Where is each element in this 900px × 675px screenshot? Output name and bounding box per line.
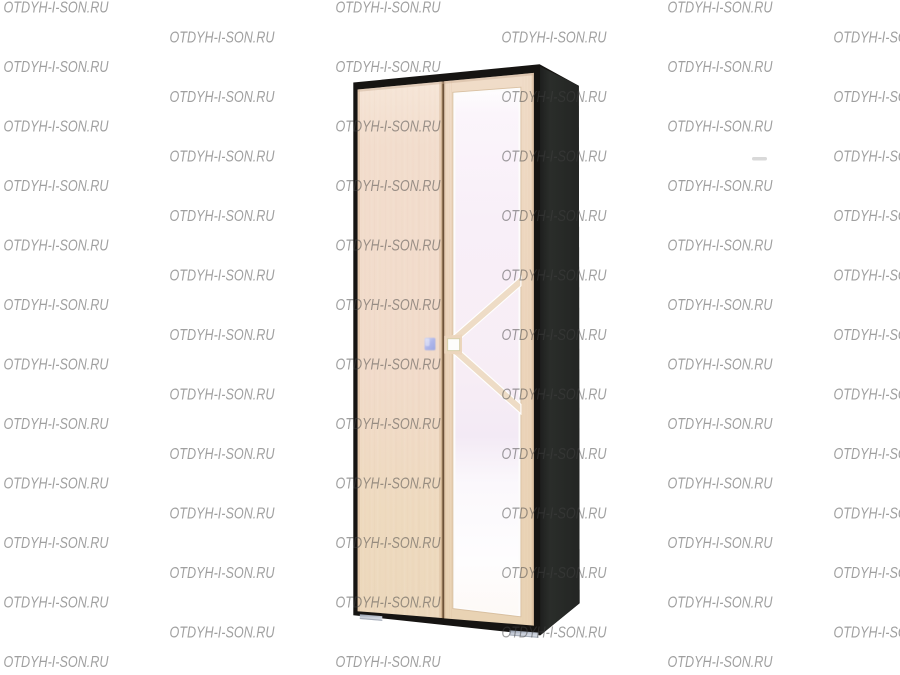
svg-text:OTDYH-I-SON.RU: OTDYH-I-SON.RU bbox=[170, 89, 275, 106]
svg-text:OTDYH-I-SON.RU: OTDYH-I-SON.RU bbox=[336, 238, 441, 255]
svg-text:OTDYH-I-SON.RU: OTDYH-I-SON.RU bbox=[170, 327, 275, 344]
svg-text:OTDYH-I-SON.RU: OTDYH-I-SON.RU bbox=[834, 29, 900, 46]
svg-text:OTDYH-I-SON.RU: OTDYH-I-SON.RU bbox=[336, 416, 441, 433]
svg-text:OTDYH-I-SON.RU: OTDYH-I-SON.RU bbox=[502, 505, 607, 522]
svg-text:OTDYH-I-SON.RU: OTDYH-I-SON.RU bbox=[834, 446, 900, 463]
svg-text:OTDYH-I-SON.RU: OTDYH-I-SON.RU bbox=[668, 119, 773, 136]
svg-text:OTDYH-I-SON.RU: OTDYH-I-SON.RU bbox=[668, 416, 773, 433]
svg-text:OTDYH-I-SON.RU: OTDYH-I-SON.RU bbox=[668, 0, 773, 17]
svg-text:OTDYH-I-SON.RU: OTDYH-I-SON.RU bbox=[336, 297, 441, 314]
svg-text:OTDYH-I-SON.RU: OTDYH-I-SON.RU bbox=[4, 238, 109, 255]
svg-text:OTDYH-I-SON.RU: OTDYH-I-SON.RU bbox=[668, 178, 773, 195]
svg-text:OTDYH-I-SON.RU: OTDYH-I-SON.RU bbox=[668, 297, 773, 314]
svg-text:OTDYH-I-SON.RU: OTDYH-I-SON.RU bbox=[4, 0, 109, 17]
svg-text:OTDYH-I-SON.RU: OTDYH-I-SON.RU bbox=[4, 476, 109, 493]
svg-text:OTDYH-I-SON.RU: OTDYH-I-SON.RU bbox=[336, 476, 441, 493]
svg-text:OTDYH-I-SON.RU: OTDYH-I-SON.RU bbox=[170, 386, 275, 403]
svg-text:OTDYH-I-SON.RU: OTDYH-I-SON.RU bbox=[502, 386, 607, 403]
svg-text:OTDYH-I-SON.RU: OTDYH-I-SON.RU bbox=[336, 178, 441, 195]
svg-text:OTDYH-I-SON.RU: OTDYH-I-SON.RU bbox=[834, 505, 900, 522]
svg-text:OTDYH-I-SON.RU: OTDYH-I-SON.RU bbox=[502, 565, 607, 582]
svg-text:OTDYH-I-SON.RU: OTDYH-I-SON.RU bbox=[336, 0, 441, 17]
svg-text:OTDYH-I-SON.RU: OTDYH-I-SON.RU bbox=[668, 654, 773, 671]
svg-text:OTDYH-I-SON.RU: OTDYH-I-SON.RU bbox=[4, 297, 109, 314]
svg-text:OTDYH-I-SON.RU: OTDYH-I-SON.RU bbox=[170, 446, 275, 463]
svg-text:OTDYH-I-SON.RU: OTDYH-I-SON.RU bbox=[170, 624, 275, 641]
svg-text:OTDYH-I-SON.RU: OTDYH-I-SON.RU bbox=[4, 535, 109, 552]
svg-text:OTDYH-I-SON.RU: OTDYH-I-SON.RU bbox=[4, 416, 109, 433]
svg-text:OTDYH-I-SON.RU: OTDYH-I-SON.RU bbox=[668, 535, 773, 552]
svg-text:OTDYH-I-SON.RU: OTDYH-I-SON.RU bbox=[834, 327, 900, 344]
svg-text:OTDYH-I-SON.RU: OTDYH-I-SON.RU bbox=[668, 595, 773, 612]
svg-text:OTDYH-I-SON.RU: OTDYH-I-SON.RU bbox=[336, 654, 441, 671]
svg-text:OTDYH-I-SON.RU: OTDYH-I-SON.RU bbox=[170, 148, 275, 165]
svg-text:OTDYH-I-SON.RU: OTDYH-I-SON.RU bbox=[834, 148, 900, 165]
svg-text:OTDYH-I-SON.RU: OTDYH-I-SON.RU bbox=[502, 327, 607, 344]
svg-text:OTDYH-I-SON.RU: OTDYH-I-SON.RU bbox=[336, 535, 441, 552]
svg-text:OTDYH-I-SON.RU: OTDYH-I-SON.RU bbox=[668, 476, 773, 493]
svg-text:OTDYH-I-SON.RU: OTDYH-I-SON.RU bbox=[336, 59, 441, 76]
svg-text:OTDYH-I-SON.RU: OTDYH-I-SON.RU bbox=[4, 119, 109, 136]
svg-text:OTDYH-I-SON.RU: OTDYH-I-SON.RU bbox=[170, 505, 275, 522]
svg-text:OTDYH-I-SON.RU: OTDYH-I-SON.RU bbox=[834, 386, 900, 403]
svg-text:OTDYH-I-SON.RU: OTDYH-I-SON.RU bbox=[4, 654, 109, 671]
svg-text:OTDYH-I-SON.RU: OTDYH-I-SON.RU bbox=[834, 89, 900, 106]
svg-text:OTDYH-I-SON.RU: OTDYH-I-SON.RU bbox=[336, 357, 441, 374]
svg-text:OTDYH-I-SON.RU: OTDYH-I-SON.RU bbox=[668, 59, 773, 76]
svg-text:OTDYH-I-SON.RU: OTDYH-I-SON.RU bbox=[668, 357, 773, 374]
svg-text:OTDYH-I-SON.RU: OTDYH-I-SON.RU bbox=[170, 267, 275, 284]
svg-text:OTDYH-I-SON.RU: OTDYH-I-SON.RU bbox=[170, 29, 275, 46]
svg-text:OTDYH-I-SON.RU: OTDYH-I-SON.RU bbox=[4, 595, 109, 612]
svg-text:OTDYH-I-SON.RU: OTDYH-I-SON.RU bbox=[834, 208, 900, 225]
svg-text:OTDYH-I-SON.RU: OTDYH-I-SON.RU bbox=[4, 59, 109, 76]
svg-text:OTDYH-I-SON.RU: OTDYH-I-SON.RU bbox=[502, 89, 607, 106]
svg-text:OTDYH-I-SON.RU: OTDYH-I-SON.RU bbox=[170, 208, 275, 225]
svg-text:OTDYH-I-SON.RU: OTDYH-I-SON.RU bbox=[834, 624, 900, 641]
svg-text:OTDYH-I-SON.RU: OTDYH-I-SON.RU bbox=[502, 624, 607, 641]
svg-text:OTDYH-I-SON.RU: OTDYH-I-SON.RU bbox=[336, 595, 441, 612]
svg-text:OTDYH-I-SON.RU: OTDYH-I-SON.RU bbox=[4, 178, 109, 195]
svg-text:OTDYH-I-SON.RU: OTDYH-I-SON.RU bbox=[502, 148, 607, 165]
svg-text:OTDYH-I-SON.RU: OTDYH-I-SON.RU bbox=[668, 238, 773, 255]
svg-text:OTDYH-I-SON.RU: OTDYH-I-SON.RU bbox=[502, 267, 607, 284]
svg-text:OTDYH-I-SON.RU: OTDYH-I-SON.RU bbox=[502, 446, 607, 463]
svg-text:OTDYH-I-SON.RU: OTDYH-I-SON.RU bbox=[502, 29, 607, 46]
svg-text:OTDYH-I-SON.RU: OTDYH-I-SON.RU bbox=[834, 565, 900, 582]
svg-text:OTDYH-I-SON.RU: OTDYH-I-SON.RU bbox=[336, 119, 441, 136]
svg-text:OTDYH-I-SON.RU: OTDYH-I-SON.RU bbox=[170, 565, 275, 582]
svg-text:OTDYH-I-SON.RU: OTDYH-I-SON.RU bbox=[502, 208, 607, 225]
svg-text:OTDYH-I-SON.RU: OTDYH-I-SON.RU bbox=[4, 357, 109, 374]
svg-text:OTDYH-I-SON.RU: OTDYH-I-SON.RU bbox=[834, 267, 900, 284]
